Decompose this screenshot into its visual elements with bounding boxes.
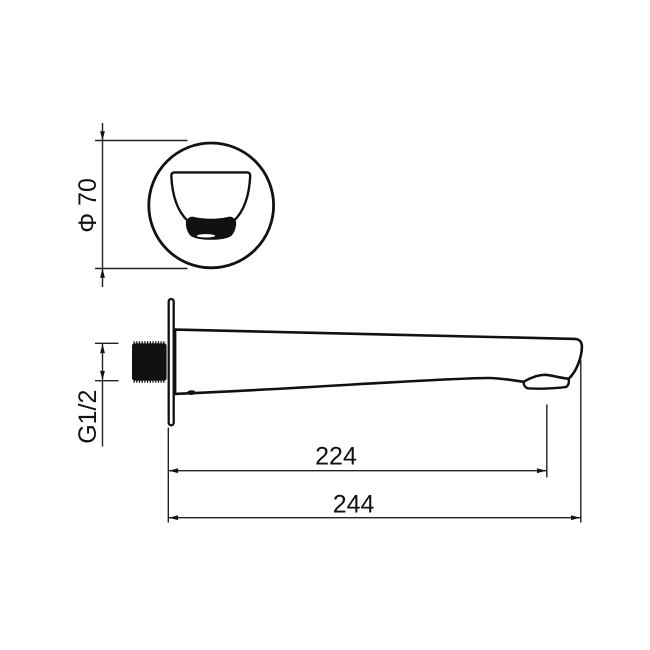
svg-text:244: 244 (333, 490, 375, 518)
svg-text:G1/2: G1/2 (74, 390, 102, 444)
svg-text:224: 224 (315, 442, 357, 470)
svg-text:Φ 70: Φ 70 (74, 178, 102, 233)
